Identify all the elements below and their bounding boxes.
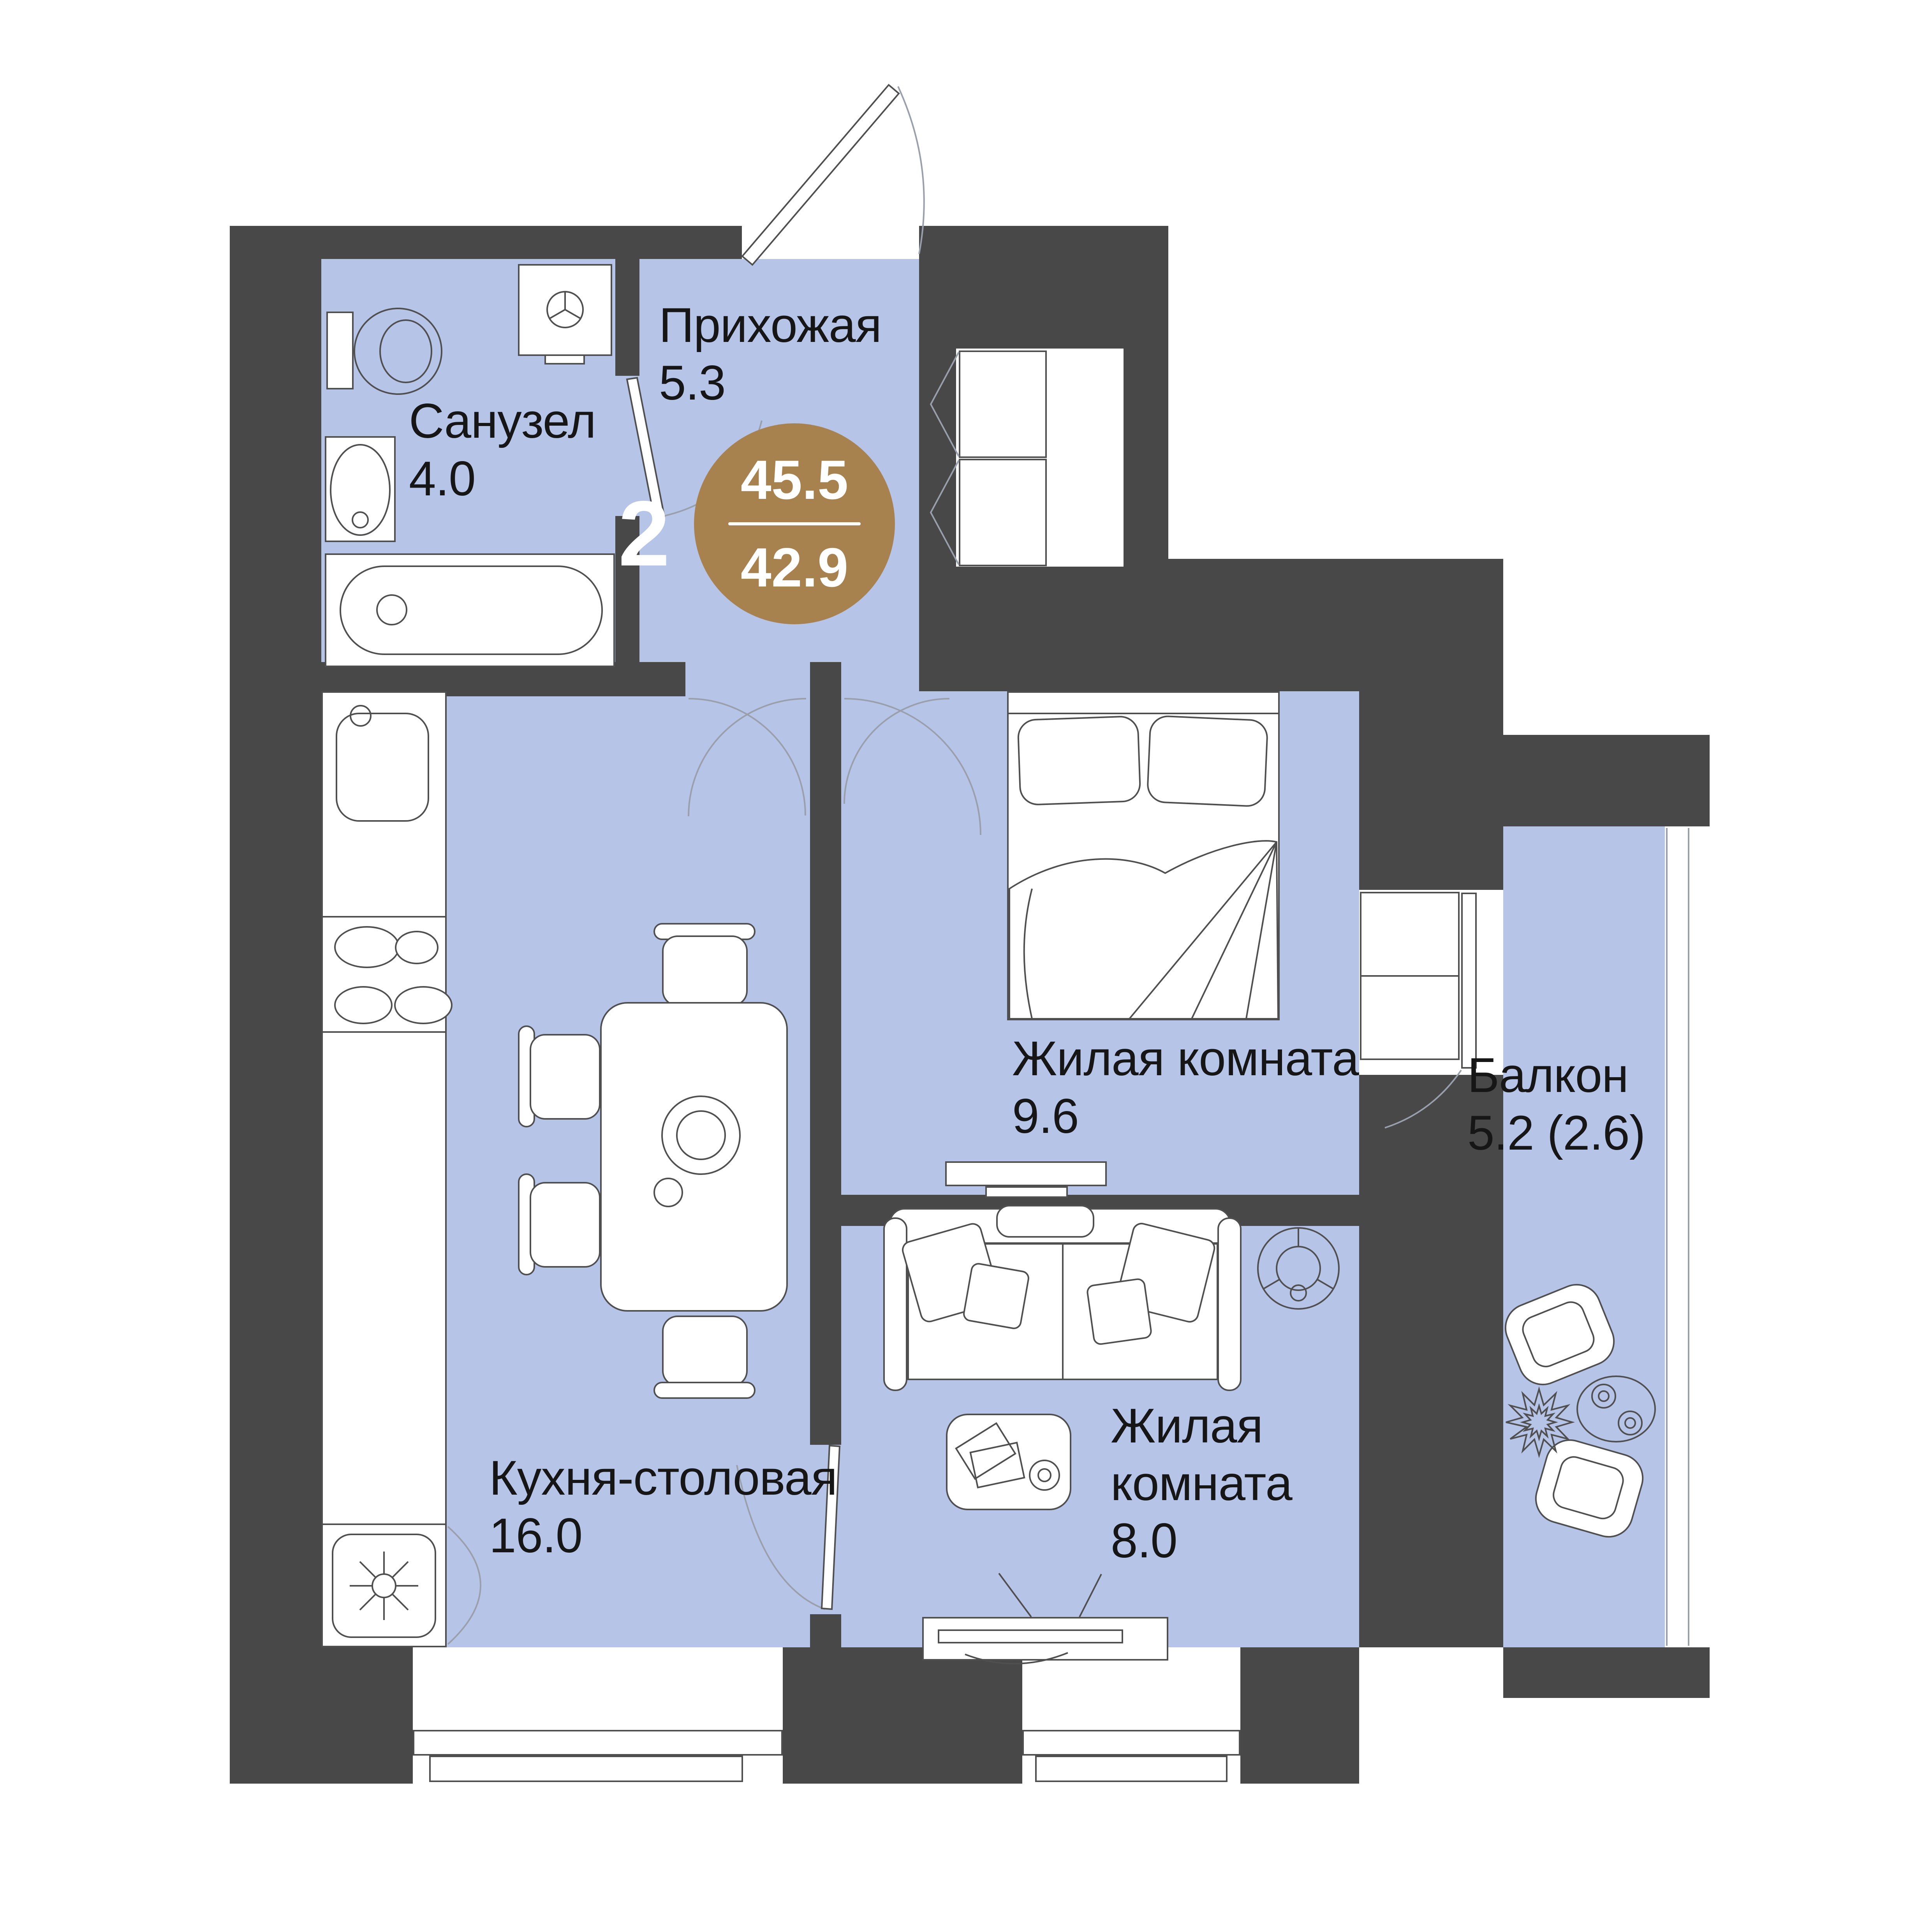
balcony-door-arc [1385, 1070, 1461, 1128]
tub-drain [377, 595, 407, 625]
room-area: 8.0 [1111, 1512, 1292, 1570]
plate-cup [654, 1178, 682, 1206]
room-name-line1: Жилая [1111, 1397, 1292, 1455]
entrance-door-arc [898, 86, 924, 254]
room-label-bedroom: Жилая комната 9.6 [1012, 1030, 1359, 1145]
kitchen-door-arc-1 [689, 699, 805, 815]
bedroom-door-arc-2 [844, 699, 949, 804]
toilet-seat [380, 320, 431, 382]
floor-lamp-dot [1291, 1285, 1306, 1301]
fridge-door-arc [448, 1527, 481, 1644]
balcony-table-icon [1577, 1376, 1655, 1442]
kitchen-faucet [350, 706, 371, 726]
plant-icon [1506, 1389, 1572, 1455]
plate-inner [677, 1111, 725, 1159]
bed-blanket [1009, 841, 1278, 1019]
room-name: Прихожая [659, 297, 881, 354]
room-name: Балкон [1467, 1047, 1645, 1104]
kitchen-door-arc-2 [689, 699, 806, 816]
total-area: 45.5 [741, 451, 848, 509]
badge-divider [728, 522, 861, 525]
snowflake-spokes [350, 1552, 418, 1620]
living-area: 42.9 [741, 539, 848, 597]
linework-overlay [0, 0, 1932, 1932]
coffee-cup-inner [1038, 1469, 1051, 1481]
sink-basin [331, 445, 390, 535]
sink-drain [352, 512, 368, 528]
floor-plan: Прихожая 5.3 Санузел 4.0 Жилая комната 9… [0, 0, 1932, 1932]
room-name: Санузел [409, 393, 596, 450]
hall-wardrobe-swings [931, 352, 959, 565]
room-area: 5.3 [659, 354, 881, 412]
balcony-glazing-icon [1667, 828, 1689, 1646]
room-name: Кухня-столовая [489, 1449, 837, 1507]
room-area: 5.2 (2.6) [1467, 1104, 1645, 1162]
floor-lamp-inner [1277, 1247, 1320, 1290]
area-badge: 45.5 42.9 [694, 423, 895, 624]
room-label-hallway: Прихожая 5.3 [659, 297, 881, 412]
room-label-living: Жилая комната 8.0 [1111, 1397, 1292, 1570]
entrance-door-icon [742, 85, 899, 265]
room-name-line2: комната [1111, 1455, 1292, 1513]
room-area: 9.6 [1012, 1088, 1359, 1145]
room-name: Жилая комната [1012, 1030, 1359, 1088]
coffee-cup-outer [1030, 1460, 1059, 1490]
console-curve [965, 1573, 1101, 1664]
rooms-count: 2 [549, 488, 670, 580]
room-label-kitchen: Кухня-столовая 16.0 [489, 1449, 837, 1564]
plate-outer [662, 1096, 740, 1174]
room-label-balcony: Балкон 5.2 (2.6) [1467, 1047, 1645, 1162]
floor-lamp-spokes [1264, 1228, 1333, 1289]
room-area: 16.0 [489, 1507, 837, 1565]
bedroom-door-arc-1 [844, 699, 981, 835]
